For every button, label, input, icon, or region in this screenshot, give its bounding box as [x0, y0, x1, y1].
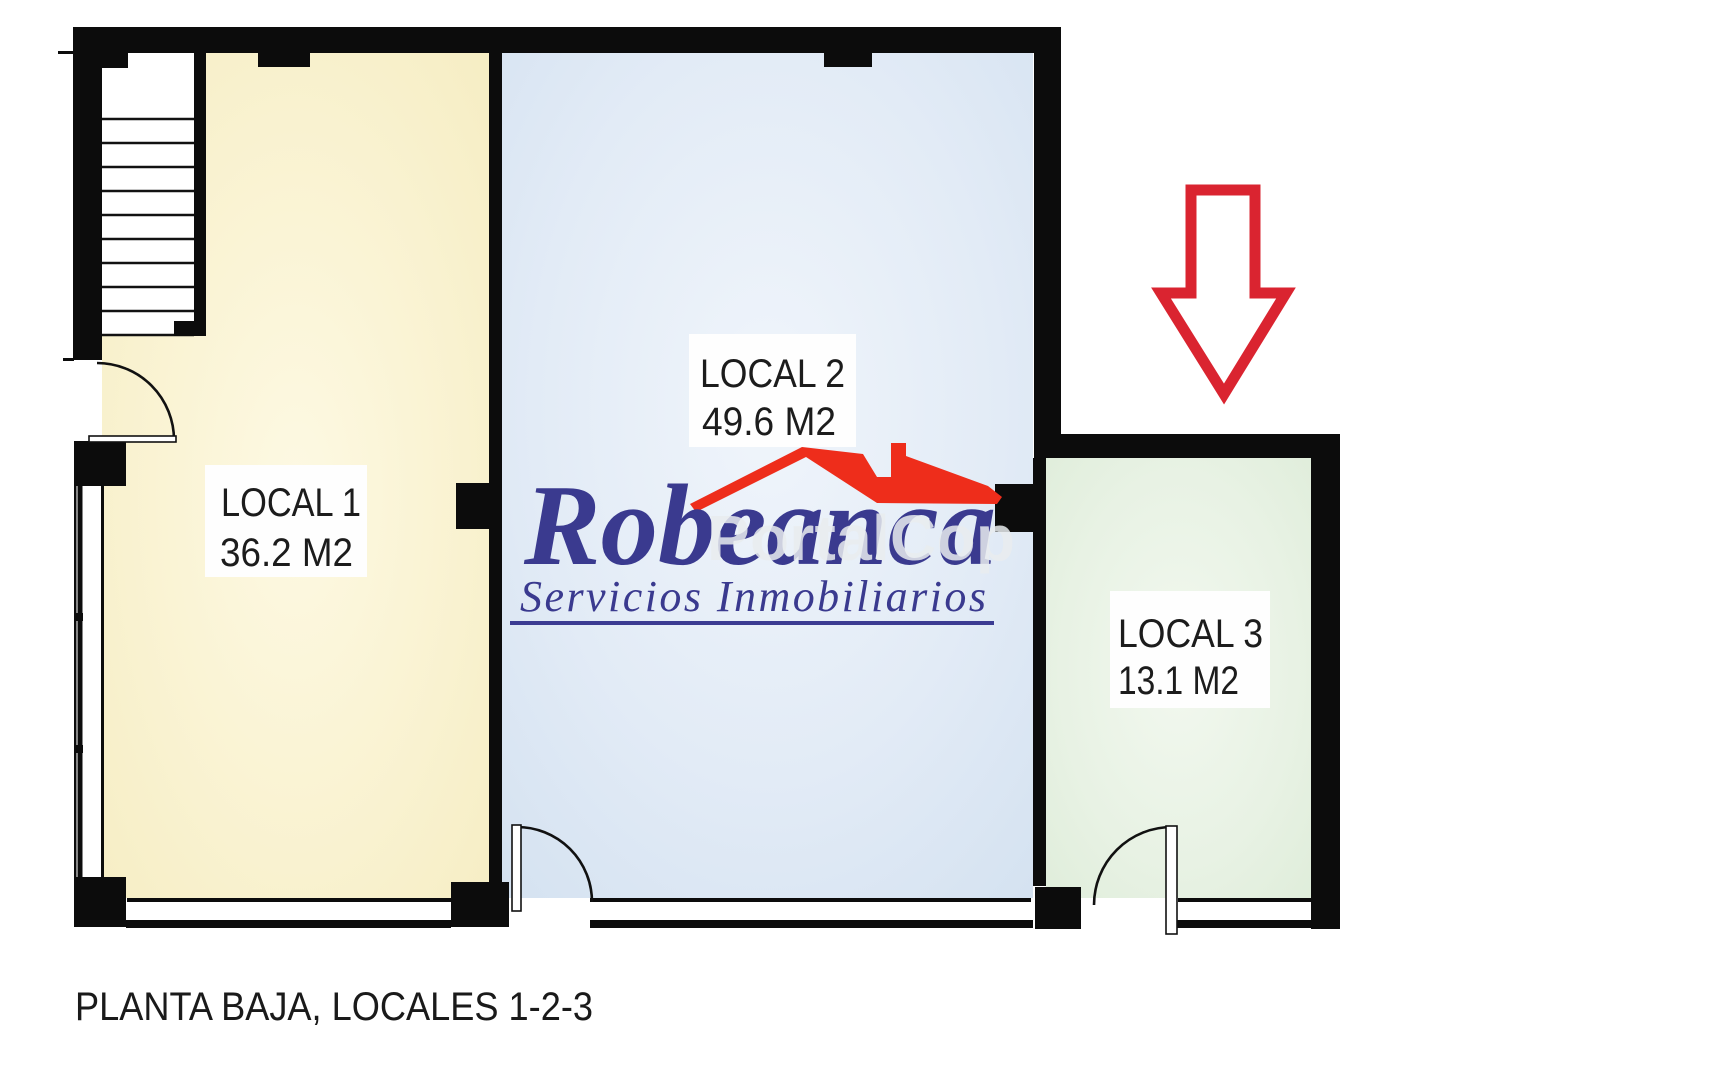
- svg-text:PLANTA BAJA, LOCALES 1-2-3: PLANTA BAJA, LOCALES 1-2-3: [75, 985, 593, 1029]
- svg-text:36.2 M2: 36.2 M2: [220, 531, 353, 575]
- svg-text:49.6 M2: 49.6 M2: [702, 400, 836, 444]
- svg-text:PortalCop: PortalCop: [707, 502, 1015, 574]
- svg-text:LOCAL 3: LOCAL 3: [1118, 612, 1263, 656]
- svg-text:Servicios Inmobiliarios: Servicios Inmobiliarios: [520, 572, 986, 621]
- svg-text:LOCAL 1: LOCAL 1: [221, 481, 361, 525]
- svg-text:LOCAL 2: LOCAL 2: [700, 352, 845, 396]
- svg-text:13.1 M2: 13.1 M2: [1118, 659, 1239, 703]
